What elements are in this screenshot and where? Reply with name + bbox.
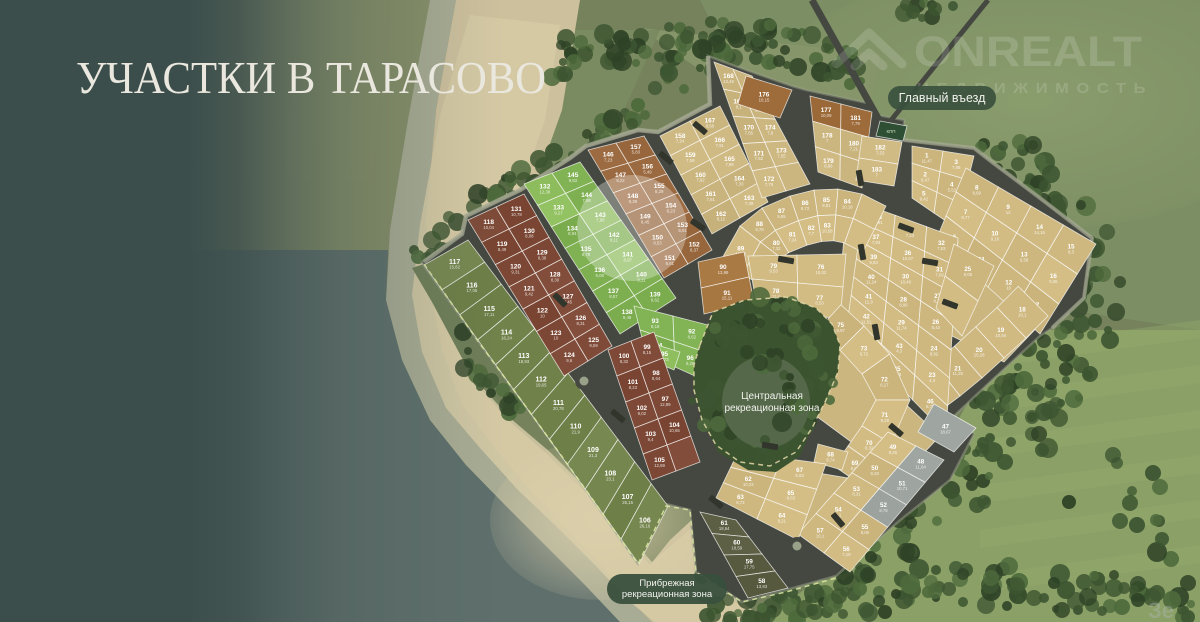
svg-text:ONREALT: ONREALT [914, 28, 1142, 76]
svg-text:4,3: 4,3 [896, 349, 903, 354]
svg-text:9,33: 9,33 [871, 471, 880, 476]
svg-text:10,1: 10,1 [1018, 312, 1027, 317]
svg-text:9,58: 9,58 [1020, 258, 1029, 263]
svg-text:10,07: 10,07 [902, 256, 913, 261]
svg-text:10,46: 10,46 [900, 279, 911, 284]
svg-text:10,58: 10,58 [822, 229, 833, 234]
svg-text:12: 12 [1006, 210, 1011, 215]
svg-text:8,31: 8,31 [852, 492, 861, 497]
svg-text:8,06: 8,06 [861, 530, 870, 535]
svg-text:13,49: 13,49 [723, 79, 734, 84]
svg-text:15,11: 15,11 [722, 296, 733, 301]
svg-text:7,55: 7,55 [777, 153, 786, 158]
svg-text:10: 10 [1006, 285, 1011, 290]
svg-text:8,96: 8,96 [899, 302, 908, 307]
svg-text:8,3: 8,3 [1068, 250, 1075, 255]
svg-text:10,71: 10,71 [897, 486, 908, 491]
svg-text:10,02: 10,02 [816, 270, 827, 275]
svg-text:8,78: 8,78 [755, 227, 764, 232]
svg-text:17,75: 17,75 [744, 565, 755, 570]
svg-text:8,63: 8,63 [787, 496, 796, 501]
svg-text:9,42: 9,42 [920, 196, 929, 201]
svg-text:11,28: 11,28 [952, 371, 963, 376]
svg-text:7,09: 7,09 [935, 272, 944, 277]
svg-text:7,32: 7,32 [772, 246, 781, 251]
svg-text:7,7: 7,7 [808, 231, 815, 236]
svg-text:9,36: 9,36 [1049, 279, 1058, 284]
svg-text:7,33: 7,33 [735, 182, 744, 187]
svg-text:10,94: 10,94 [995, 333, 1006, 338]
svg-text:7,76: 7,76 [765, 182, 774, 187]
svg-text:9,53: 9,53 [769, 269, 778, 274]
svg-text:8,74: 8,74 [826, 457, 835, 462]
svg-text:Центральная: Центральная [741, 391, 803, 402]
svg-text:8,53: 8,53 [815, 301, 824, 306]
svg-text:Зе: Зе [1148, 598, 1174, 622]
svg-text:7,39: 7,39 [745, 201, 754, 206]
svg-text:9,83: 9,83 [869, 260, 878, 265]
svg-text:8,21: 8,21 [778, 519, 787, 524]
svg-text:7,98: 7,98 [725, 162, 734, 167]
svg-text:рекреационная зона: рекреационная зона [725, 403, 820, 414]
svg-text:7,21: 7,21 [850, 146, 859, 151]
svg-text:Прибрежная: Прибрежная [639, 578, 694, 589]
svg-text:9,81: 9,81 [822, 203, 831, 208]
svg-text:КПП: КПП [886, 129, 895, 134]
svg-text:7,24: 7,24 [788, 238, 797, 243]
svg-text:8,47: 8,47 [921, 177, 930, 182]
svg-text:11,47: 11,47 [922, 158, 933, 163]
svg-text:8,69: 8,69 [973, 190, 982, 195]
svg-text:9,85: 9,85 [777, 214, 786, 219]
svg-text:9,16: 9,16 [991, 236, 1000, 241]
svg-text:18,67: 18,67 [940, 429, 951, 434]
svg-text:УЧАСТКИ В ТАРАСОВО: УЧАСТКИ В ТАРАСОВО [76, 52, 546, 103]
svg-text:7,52: 7,52 [755, 156, 764, 161]
svg-text:10,28: 10,28 [974, 353, 985, 358]
svg-text:10,23: 10,23 [743, 482, 754, 487]
svg-text:8,78: 8,78 [879, 508, 888, 513]
svg-text:11,64: 11,64 [915, 464, 926, 469]
svg-text:4,3: 4,3 [929, 378, 936, 383]
svg-text:7,93: 7,93 [872, 240, 881, 245]
svg-text:13,83: 13,83 [756, 584, 767, 589]
svg-text:8,86: 8,86 [824, 164, 833, 169]
svg-text:8,77: 8,77 [961, 215, 970, 220]
svg-text:18,59: 18,59 [731, 545, 742, 550]
svg-text:7,23: 7,23 [906, 233, 915, 238]
svg-text:5,52: 5,52 [948, 187, 957, 192]
svg-text:7,88: 7,88 [952, 165, 961, 170]
svg-text:7,79: 7,79 [851, 121, 860, 126]
svg-text:10,15: 10,15 [759, 97, 770, 102]
svg-text:6,72: 6,72 [860, 351, 869, 356]
svg-text:8,53: 8,53 [795, 473, 804, 478]
svg-text:8,92: 8,92 [930, 351, 939, 356]
svg-text:11,9: 11,9 [865, 300, 874, 305]
svg-text:рекреационная зона: рекреационная зона [622, 589, 713, 600]
svg-text:9,97: 9,97 [837, 328, 846, 333]
svg-text:18,64: 18,64 [719, 526, 730, 531]
svg-text:11,51: 11,51 [861, 320, 872, 325]
svg-text:7,65: 7,65 [745, 130, 754, 135]
svg-text:11,24: 11,24 [866, 280, 877, 285]
svg-text:8,08: 8,08 [964, 272, 973, 277]
svg-text:7,8: 7,8 [767, 130, 774, 135]
svg-text:Главный въезд: Главный въезд [899, 91, 986, 105]
svg-text:14,16: 14,16 [1034, 230, 1045, 235]
svg-text:7,19: 7,19 [842, 552, 851, 557]
svg-text:8,43: 8,43 [932, 325, 941, 330]
svg-text:8,25: 8,25 [889, 450, 898, 455]
svg-text:6,17: 6,17 [880, 382, 889, 387]
svg-text:10,18: 10,18 [842, 205, 853, 210]
svg-text:9,28: 9,28 [881, 418, 890, 423]
svg-text:11,74: 11,74 [896, 326, 907, 331]
svg-text:10,09: 10,09 [821, 113, 832, 118]
svg-text:7,53: 7,53 [876, 150, 885, 155]
svg-text:7,63: 7,63 [937, 246, 946, 251]
svg-text:10,1: 10,1 [816, 533, 825, 538]
svg-text:8,73: 8,73 [736, 500, 745, 505]
svg-text:8,72: 8,72 [801, 206, 810, 211]
